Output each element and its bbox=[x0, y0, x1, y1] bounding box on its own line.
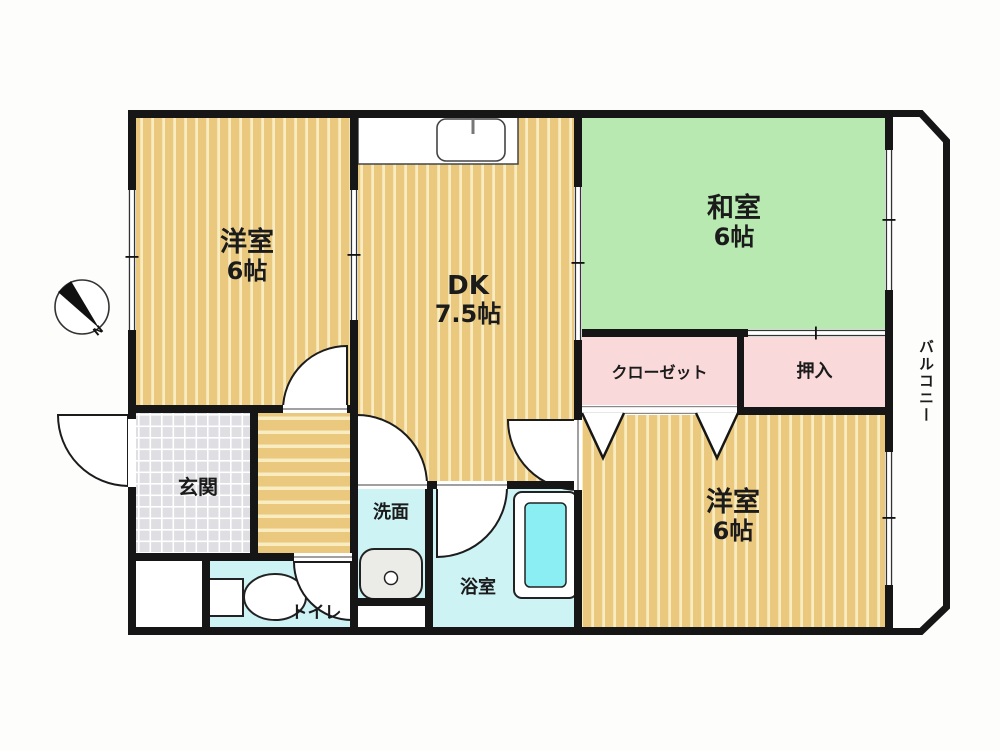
hallway-floor bbox=[254, 409, 354, 559]
floor-plan: N 洋室 6帖 DK 7.5帖 和室 6帖 洋室 6帖 クローゼット 押入 玄関… bbox=[0, 0, 1000, 750]
storage-nook-floor bbox=[354, 602, 429, 631]
entrance-door-swing bbox=[58, 415, 128, 486]
japanese-room-floor bbox=[578, 112, 889, 335]
side-room-floor bbox=[132, 557, 206, 631]
floor-plan-drawing: N bbox=[0, 0, 1000, 750]
closet-floor bbox=[580, 333, 740, 411]
oshiire-floor bbox=[740, 333, 891, 411]
entrance-floor bbox=[132, 409, 254, 557]
toilet-tank bbox=[209, 579, 243, 616]
kitchen-sink bbox=[437, 119, 505, 161]
bathtub-basin bbox=[525, 503, 566, 587]
compass-icon: N bbox=[55, 280, 109, 339]
washbasin-drain bbox=[385, 572, 398, 585]
western-room-bottom-floor bbox=[578, 411, 889, 631]
balcony-wall bbox=[893, 114, 947, 632]
